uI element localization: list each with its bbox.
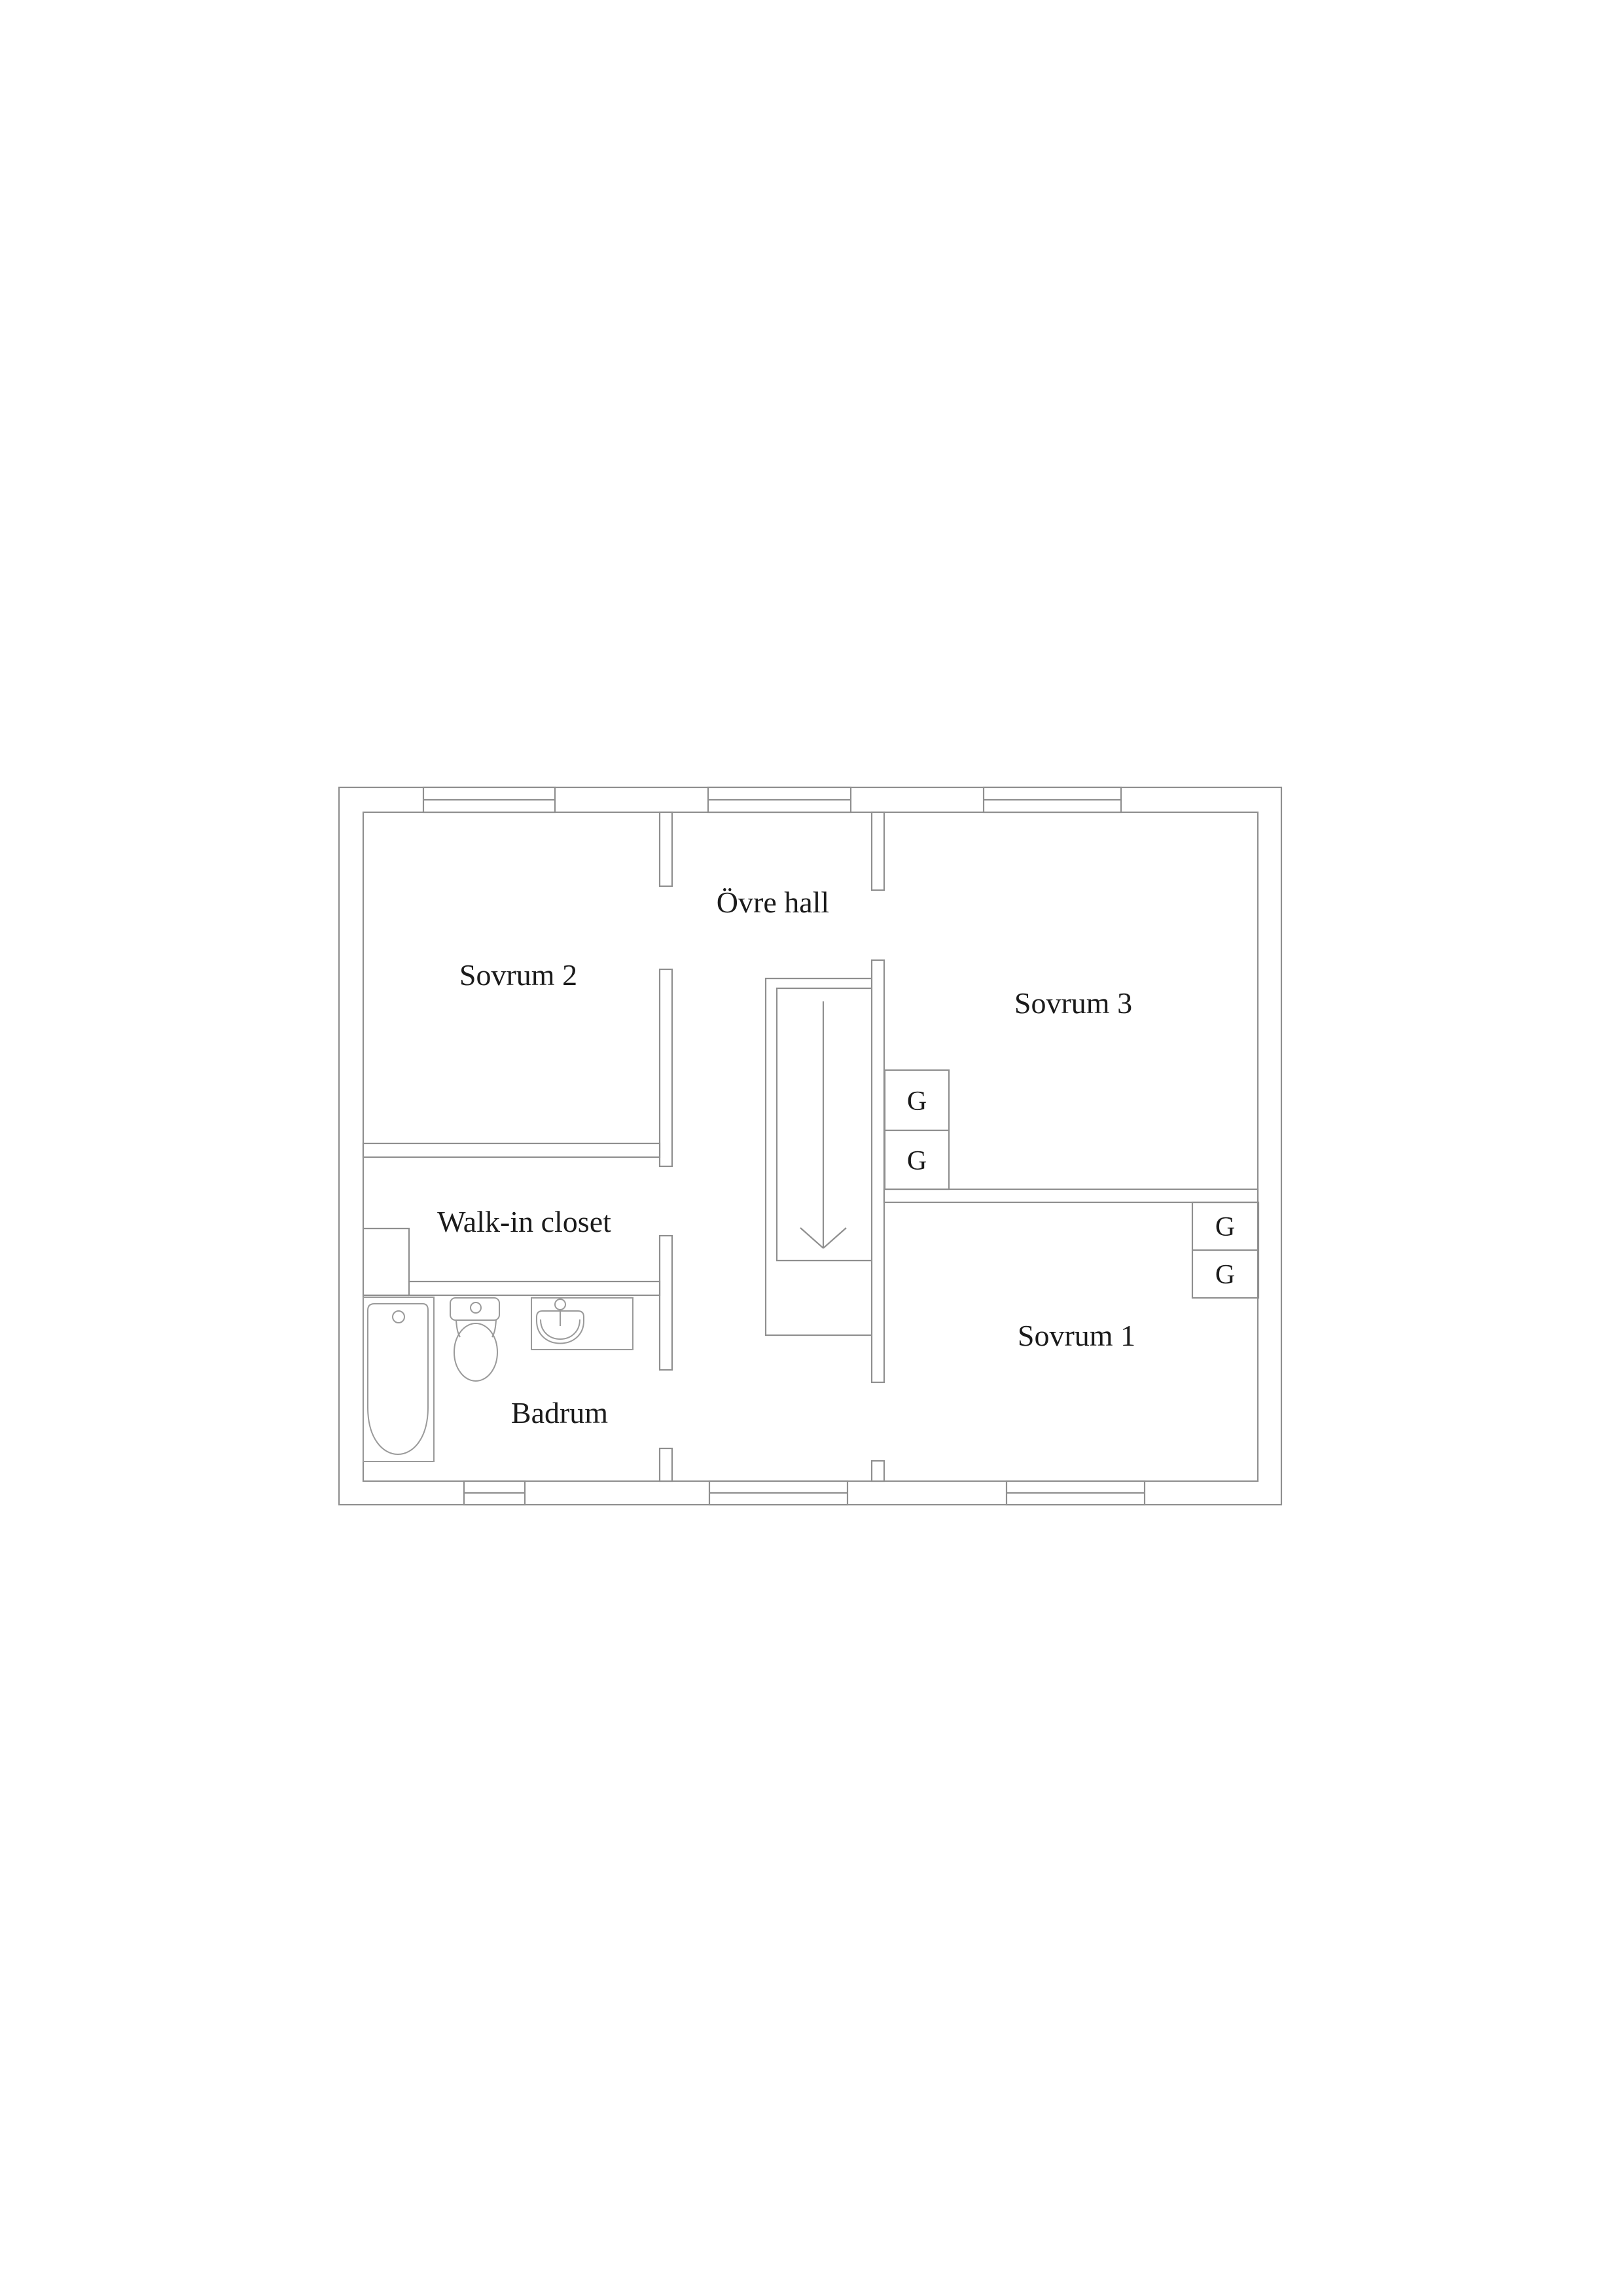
sovrum3-bottom-wall [884,1189,1258,1202]
sovrum1-wardrobes-label-2: G [1215,1260,1235,1290]
hall-sovrum-1-3-wall [872,960,884,1382]
sovrum3-wardrobes-label-2: G [907,1146,927,1176]
sovrum2-hall-wall-mid [660,969,672,1166]
stairwell-outer-boundary [766,978,871,1335]
sink-faucet [555,1299,565,1310]
room-label-badrum: Badrum [511,1396,608,1429]
badrum-door-stub [660,1448,672,1481]
sovrum1-wardrobes-label-1: G [1215,1212,1235,1242]
toilet-tank [450,1298,499,1320]
sovrum2-bottom-wall [363,1143,660,1157]
stair-direction-arrow-head-2 [823,1228,846,1248]
toilet-bowl [454,1323,497,1381]
closet-badrum-wall [409,1282,660,1295]
room-label-sovrum-3: Sovrum 3 [1014,986,1132,1020]
sovrum1-door-stub [872,1461,884,1481]
sovrum3-wardrobes-label-1: G [907,1086,927,1117]
hall-sovrum3-wall-upper [872,812,884,890]
floor-plan-drawing: GGGGSovrum 2Övre hallSovrum 3Walk-in clo… [0,0,1623,2296]
room-label-walk-in-closet: Walk-in closet [437,1205,611,1238]
toilet-bowl-shoulder-2 [492,1320,496,1337]
badrum-hall-wall [660,1236,672,1370]
sovrum2-hall-wall-upper [660,812,672,886]
floor-plan-page: GGGGSovrum 2Övre hallSovrum 3Walk-in clo… [0,0,1623,2296]
stair-direction-arrow-head-1 [800,1228,823,1248]
closet-step-wall [363,1229,409,1282]
sink-counter [531,1298,633,1350]
bathtub-drain [393,1311,404,1323]
room-label-ovre-hall: Övre hall [717,886,829,919]
room-label-sovrum-1: Sovrum 1 [1018,1319,1135,1352]
bathtub-inner-rim [368,1304,428,1454]
room-label-sovrum-2: Sovrum 2 [459,958,577,992]
